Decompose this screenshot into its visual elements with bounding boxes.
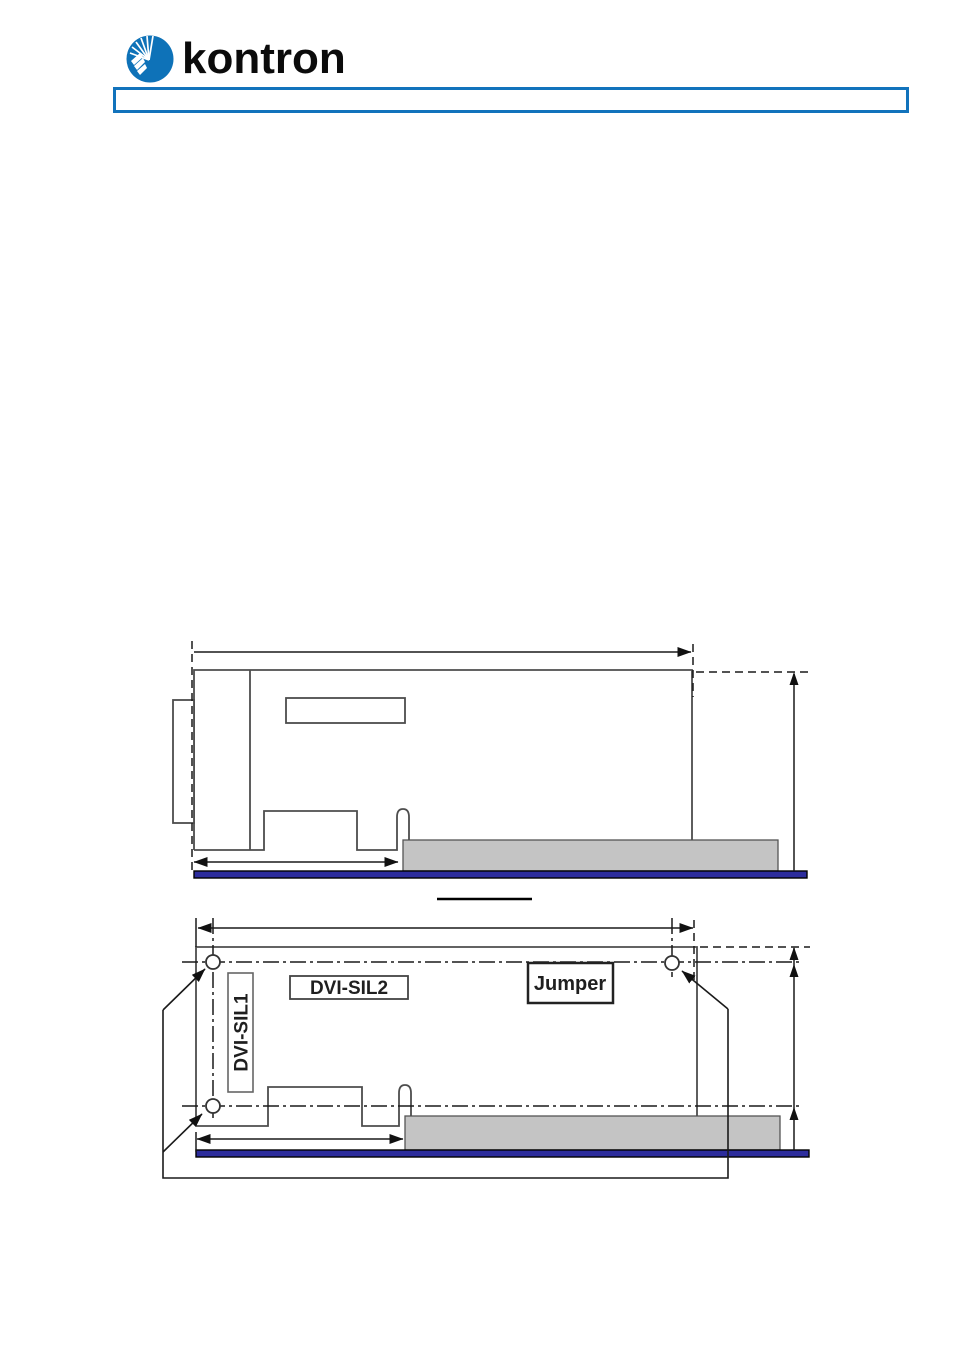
mounting-hole-top-right (665, 956, 679, 970)
fig1-body-top-sides (194, 670, 692, 850)
figure2-mounting-view: DVI-SIL1 DVI-SIL2 Jumper (163, 918, 810, 1178)
fig2-arrow-to-top-edge (790, 947, 799, 960)
fig1-module-outline (173, 670, 692, 850)
jumper-label: Jumper (534, 973, 606, 995)
fig2-labels: DVI-SIL1 DVI-SIL2 Jumper (228, 963, 613, 1092)
fig1-height-dimension-arrowhead (790, 672, 799, 685)
fig2-arrow-to-upper-centerline (790, 964, 799, 977)
mounting-hole-bottom-left (206, 1099, 220, 1113)
leader-to-top-right-hole (682, 971, 728, 1009)
fig1-dimensions (192, 641, 810, 872)
fig1-bottom-contour (194, 809, 409, 850)
fig1-heatspreader-block (403, 840, 778, 871)
dvi-sil2-label: DVI-SIL2 (310, 978, 388, 999)
fig2-baseboard-pcb (196, 1150, 809, 1157)
figure1-side-view (173, 641, 810, 899)
mounting-hole-top-left (206, 955, 220, 969)
dvi-sil1-label: DVI-SIL1 (231, 993, 252, 1072)
document-page: kontron (0, 0, 954, 1350)
fig1-front-connector (173, 700, 194, 823)
fig2-heatspreader-block (405, 1116, 780, 1150)
fig2-module-outline (196, 947, 697, 1126)
fig1-top-component (286, 698, 405, 723)
fig2-arrow-to-lower-centerline (790, 1107, 799, 1120)
fig1-baseboard-pcb (194, 871, 807, 878)
fig2-body-top-sides (196, 947, 697, 1126)
leader-to-top-left-hole (163, 969, 205, 1010)
dimension-drawings-canvas: DVI-SIL1 DVI-SIL2 Jumper (0, 0, 954, 1350)
